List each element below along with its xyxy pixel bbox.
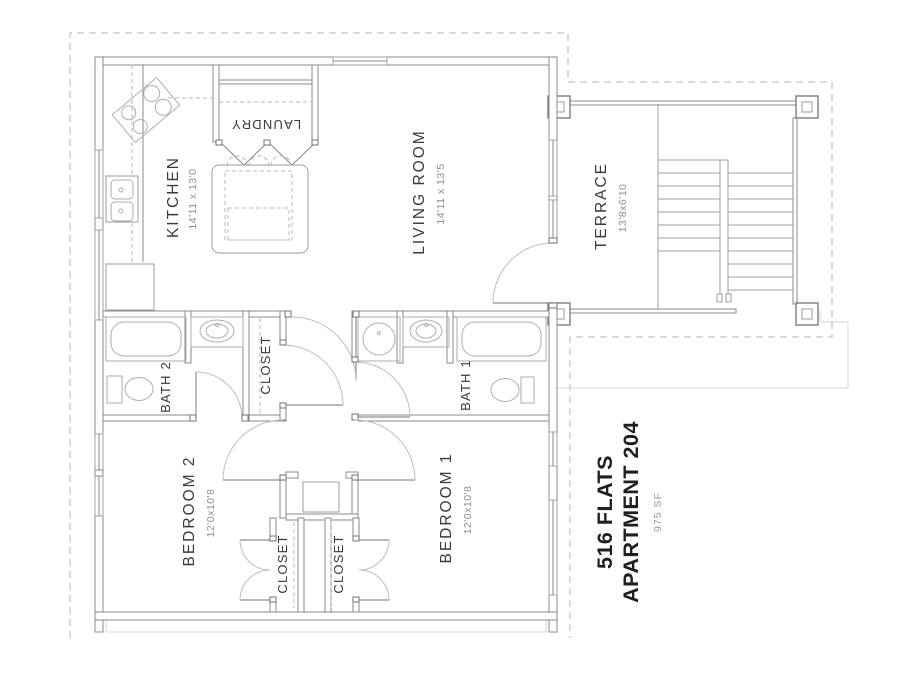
refrigerator [106,264,154,310]
bath2-vanity [191,317,243,347]
kitchen-label: KITCHEN [165,156,182,238]
bath1-label: BATH 1 [458,359,473,411]
bath1-vanity [403,317,449,347]
living-room-label: LIVING ROOM [411,129,428,254]
living-room-dims: 14'11 x 13'5 [435,163,447,224]
stair-treads-lower [728,173,793,290]
closet-bed1-label: CLOSET [331,534,346,593]
laundry-bifold-doors [216,140,318,165]
closet-bed1-double-doors [353,536,389,602]
unit-title: APARTMENT 204 [619,421,643,603]
kitchen-sink [106,176,138,222]
laundry-closet [213,65,318,165]
unit-area: 975 SF [652,492,664,532]
bath2-fixtures [106,317,243,403]
bath1-toilet [491,377,534,403]
mech-closet [286,472,358,520]
title-block: 516 FLATS APARTMENT 204 975 SF [593,421,664,603]
hall-closet-door [280,340,343,408]
kitchen-island [212,156,308,253]
washer-utility-box [358,317,400,361]
window-left-bedroom2 [95,434,103,516]
terrace-label: TERRACE [593,162,610,250]
window-left-kitchen-2 [95,230,103,320]
floor-plan-svg: KITCHEN 14'11 x 13'0 LIVING ROOM 14'11 x… [0,0,902,697]
closet-bed2-double-doors [240,536,276,602]
bedroom2-label: BEDROOM 2 [181,455,198,566]
kitchen-dims: 14'11 x 13'0 [187,168,199,229]
staircase [658,104,793,309]
bath2-tub [106,317,186,361]
stair-treads-upper [658,173,720,251]
hall-closet-label: CLOSET [258,335,273,394]
window-right-bedroom1-2 [549,500,557,595]
floor-plan-page: KITCHEN 14'11 x 13'0 LIVING ROOM 14'11 x… [0,0,902,697]
laundry-label: LAUNDRY [231,117,301,132]
window-left-kitchen-1 [95,150,103,218]
bedroom1-dims: 12'0x10'8 [462,486,474,535]
bath2-label: BATH 2 [158,361,173,413]
adjacent-structure-lines [106,310,848,632]
bath2-door [190,372,248,421]
bath1-tub [457,317,546,361]
terrace-structure [548,96,818,325]
window-top-kitchen [333,57,387,65]
cooktop [112,78,180,143]
bath1-door [352,357,410,420]
closet-bed2-label: CLOSET [275,534,290,593]
bedroom1-door [352,420,415,480]
terrace-door [493,238,557,308]
bath2-toilet [107,376,153,403]
bedroom2-dims: 12'0x10'8 [205,489,217,538]
project-title: 516 FLATS [593,455,617,569]
window-right-living-2 [549,200,557,240]
window-right-bedroom1-1 [549,432,557,466]
bedroom2-door [223,420,286,480]
bedroom1-label: BEDROOM 1 [438,452,455,563]
terrace-dims: 13'8x6'10 [617,184,629,233]
window-right-living-1 [549,140,557,196]
